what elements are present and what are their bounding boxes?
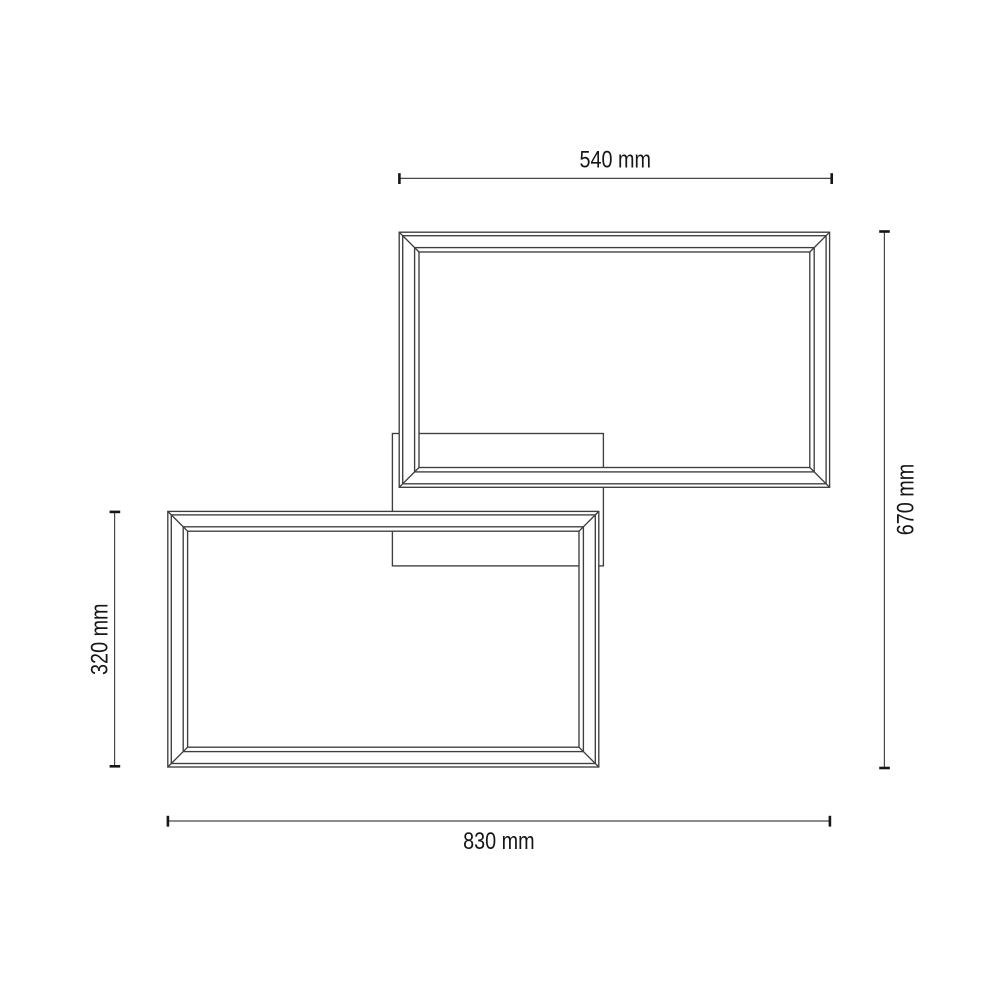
svg-text:540 mm: 540 mm: [579, 146, 651, 173]
svg-text:830 mm: 830 mm: [463, 828, 535, 855]
svg-text:670 mm: 670 mm: [893, 464, 920, 536]
svg-text:320 mm: 320 mm: [86, 603, 113, 675]
